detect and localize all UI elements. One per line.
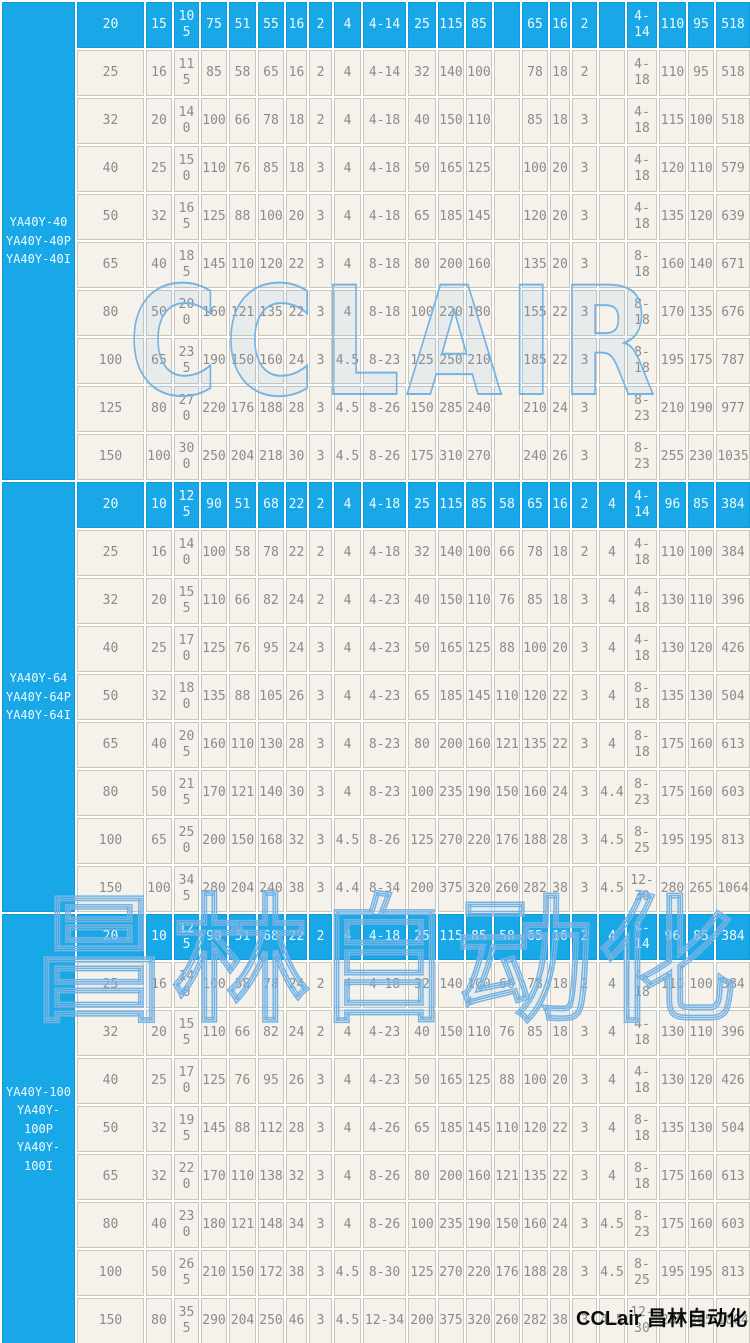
data-cell: 40 xyxy=(76,145,145,193)
data-cell: 110 xyxy=(228,1153,257,1201)
data-cell: 115 xyxy=(658,97,687,145)
data-cell: 165 xyxy=(173,193,200,241)
data-cell: 155 xyxy=(173,577,200,625)
data-cell: 78 xyxy=(257,961,285,1009)
data-cell: 4-18 xyxy=(362,481,407,529)
table-row: 4025170125769526344-23501651258810020344… xyxy=(1,1057,750,1105)
data-cell: 170 xyxy=(200,769,228,817)
data-cell: 4-18 xyxy=(626,97,658,145)
data-cell: 18 xyxy=(285,97,308,145)
data-cell: 135 xyxy=(687,289,715,337)
data-cell: 4-23 xyxy=(362,625,407,673)
data-cell: 135 xyxy=(658,673,687,721)
data-cell: 18 xyxy=(549,961,571,1009)
data-cell: 160 xyxy=(687,1153,715,1201)
data-cell: 260 xyxy=(493,865,521,913)
data-cell: 100 xyxy=(521,625,549,673)
data-cell: 18 xyxy=(285,145,308,193)
data-cell: 80 xyxy=(145,385,173,433)
data-cell: 65 xyxy=(257,49,285,97)
table-row: 4025170125769524344-23501651258810020344… xyxy=(1,625,750,673)
data-cell: 110 xyxy=(228,241,257,289)
data-cell: 4-18 xyxy=(626,577,658,625)
data-cell: 40 xyxy=(407,577,437,625)
data-cell: 90 xyxy=(200,913,228,961)
table-row: 100652351901501602434.58-231252502101852… xyxy=(1,337,750,385)
data-cell: 80 xyxy=(407,721,437,769)
data-cell: 32 xyxy=(76,1009,145,1057)
data-cell xyxy=(493,145,521,193)
data-cell: 235 xyxy=(437,1201,465,1249)
data-cell: 28 xyxy=(549,817,571,865)
data-cell: 396 xyxy=(715,577,750,625)
data-cell: 4 xyxy=(598,1057,626,1105)
data-cell: 190 xyxy=(465,769,493,817)
table-row: YA40Y-100YA40Y-100PYA40Y-100I20101259051… xyxy=(1,913,750,961)
data-cell: 125 xyxy=(465,1057,493,1105)
data-cell: 15 xyxy=(145,1,173,49)
data-cell: 18 xyxy=(549,577,571,625)
model-cell: YA40Y-64YA40Y-64PYA40Y-64I xyxy=(1,481,76,913)
data-cell: 4-18 xyxy=(626,145,658,193)
spec-sheet-page: YA40Y-40YA40Y-40PYA40Y-40I20151057551551… xyxy=(0,0,750,1343)
data-cell: 4.4 xyxy=(598,769,626,817)
data-cell: 4 xyxy=(598,961,626,1009)
data-cell: 78 xyxy=(521,529,549,577)
data-cell: 125 xyxy=(200,625,228,673)
data-cell: 200 xyxy=(437,721,465,769)
data-cell: 40 xyxy=(145,721,173,769)
data-cell: 4-14 xyxy=(626,913,658,961)
data-cell: 4 xyxy=(333,1201,362,1249)
data-cell: 32 xyxy=(285,817,308,865)
data-cell: 8-25 xyxy=(626,817,658,865)
data-cell: 26 xyxy=(285,1057,308,1105)
data-cell: 150 xyxy=(493,769,521,817)
data-cell: 3 xyxy=(571,97,598,145)
data-cell: 110 xyxy=(687,1009,715,1057)
data-cell: 40 xyxy=(76,1057,145,1105)
data-cell: 24 xyxy=(549,1201,571,1249)
data-cell xyxy=(493,433,521,481)
data-cell: 22 xyxy=(549,1105,571,1153)
data-cell: 120 xyxy=(521,673,549,721)
model-label: YA40Y-40P xyxy=(4,232,73,251)
data-cell: 16 xyxy=(285,1,308,49)
data-cell: 270 xyxy=(437,817,465,865)
data-cell: 148 xyxy=(257,1201,285,1249)
data-cell: 100 xyxy=(257,193,285,241)
data-cell: 8-18 xyxy=(626,289,658,337)
data-cell: 255 xyxy=(658,433,687,481)
data-cell: 676 xyxy=(715,289,750,337)
data-cell: 195 xyxy=(658,817,687,865)
data-cell: 240 xyxy=(257,865,285,913)
data-cell: 50 xyxy=(407,1057,437,1105)
data-cell: 110 xyxy=(658,529,687,577)
data-cell: 88 xyxy=(228,1105,257,1153)
data-cell: 24 xyxy=(285,337,308,385)
data-cell: 150 xyxy=(493,1201,521,1249)
data-cell: 188 xyxy=(521,817,549,865)
data-cell: 3 xyxy=(571,865,598,913)
data-cell: 2 xyxy=(571,913,598,961)
table-row: 3220155110668224244-2340150110768518344-… xyxy=(1,1009,750,1057)
data-cell: 4 xyxy=(333,1009,362,1057)
data-cell: 4 xyxy=(598,673,626,721)
data-cell: 65 xyxy=(521,1,549,49)
data-cell: 280 xyxy=(200,865,228,913)
brand-label: CCLair 昌林自动化 xyxy=(576,1302,747,1331)
data-cell: 135 xyxy=(521,241,549,289)
data-cell: 285 xyxy=(437,385,465,433)
data-cell: 58 xyxy=(228,49,257,97)
table-row: 50321651258810020344-18651851451202034-1… xyxy=(1,193,750,241)
data-cell: 175 xyxy=(658,1153,687,1201)
data-cell: 20 xyxy=(549,1057,571,1105)
data-cell: 2 xyxy=(571,529,598,577)
data-cell: 2 xyxy=(571,1,598,49)
data-cell: 4.5 xyxy=(333,385,362,433)
data-cell: 220 xyxy=(173,1153,200,1201)
data-cell: 4 xyxy=(598,1105,626,1153)
data-cell: 130 xyxy=(658,625,687,673)
data-cell: 185 xyxy=(521,337,549,385)
data-cell: 3 xyxy=(571,817,598,865)
data-cell: 96 xyxy=(658,481,687,529)
data-cell: 4.5 xyxy=(333,1297,362,1343)
data-cell: 96 xyxy=(658,913,687,961)
model-label: YA40Y-64I xyxy=(4,706,73,725)
data-cell: 8-18 xyxy=(626,337,658,385)
data-cell xyxy=(493,97,521,145)
data-cell: 375 xyxy=(437,1297,465,1343)
data-cell: 25 xyxy=(407,913,437,961)
data-cell: 4-26 xyxy=(362,1105,407,1153)
data-cell: 2 xyxy=(308,577,333,625)
data-cell: 50 xyxy=(145,289,173,337)
data-cell: 1064 xyxy=(715,865,750,913)
data-cell: 24 xyxy=(285,961,308,1009)
data-cell: 4-14 xyxy=(626,1,658,49)
data-cell: 50 xyxy=(145,1249,173,1297)
data-cell: 150 xyxy=(228,337,257,385)
data-cell: 25 xyxy=(76,529,145,577)
data-cell: 32 xyxy=(76,97,145,145)
data-cell: 8-34 xyxy=(362,865,407,913)
data-cell: 22 xyxy=(285,289,308,337)
data-cell: 260 xyxy=(493,1297,521,1343)
data-cell: 4 xyxy=(598,481,626,529)
data-cell: 160 xyxy=(687,769,715,817)
data-cell: 396 xyxy=(715,1009,750,1057)
data-cell: 4-18 xyxy=(362,97,407,145)
data-cell: 160 xyxy=(521,1201,549,1249)
data-cell: 145 xyxy=(200,241,228,289)
data-cell: 220 xyxy=(465,1249,493,1297)
data-cell: 3 xyxy=(571,193,598,241)
data-cell: 130 xyxy=(687,673,715,721)
data-cell: 150 xyxy=(437,577,465,625)
data-cell: 3 xyxy=(571,1249,598,1297)
data-cell: 384 xyxy=(715,481,750,529)
data-cell: 165 xyxy=(437,625,465,673)
data-cell: 195 xyxy=(687,817,715,865)
data-cell: 4-14 xyxy=(626,481,658,529)
model-label: YA40Y-100P xyxy=(4,1101,73,1138)
data-cell: 150 xyxy=(228,817,257,865)
data-cell: 787 xyxy=(715,337,750,385)
data-cell: 160 xyxy=(658,241,687,289)
data-cell: 384 xyxy=(715,913,750,961)
data-cell: 110 xyxy=(200,1009,228,1057)
table-row: 3220155110668224244-2340150110768518344-… xyxy=(1,577,750,625)
data-cell: 250 xyxy=(173,817,200,865)
data-cell: 2 xyxy=(308,913,333,961)
data-cell: 95 xyxy=(257,1057,285,1105)
data-cell: 125 xyxy=(407,337,437,385)
data-cell: 3 xyxy=(571,1201,598,1249)
data-cell: 250 xyxy=(257,1297,285,1343)
data-cell: 4-23 xyxy=(362,1057,407,1105)
data-cell: 375 xyxy=(437,865,465,913)
data-cell: 250 xyxy=(437,337,465,385)
data-cell: 165 xyxy=(437,1057,465,1105)
data-cell: 813 xyxy=(715,817,750,865)
model-label: YA40Y-40 xyxy=(4,213,73,232)
data-cell: 115 xyxy=(173,49,200,97)
data-cell: 50 xyxy=(407,625,437,673)
data-cell: 168 xyxy=(257,817,285,865)
data-cell: 4-18 xyxy=(626,625,658,673)
data-cell: 320 xyxy=(465,865,493,913)
data-cell: 8-18 xyxy=(362,241,407,289)
data-cell: 185 xyxy=(173,241,200,289)
data-cell: 426 xyxy=(715,625,750,673)
data-cell: 32 xyxy=(407,49,437,97)
data-cell: 175 xyxy=(658,1201,687,1249)
data-cell: 250 xyxy=(200,433,228,481)
data-cell: 110 xyxy=(658,49,687,97)
data-cell xyxy=(598,145,626,193)
data-cell: 82 xyxy=(257,577,285,625)
data-cell: 68 xyxy=(257,481,285,529)
data-cell: 4.4 xyxy=(333,865,362,913)
data-cell: 160 xyxy=(687,1201,715,1249)
data-cell: 2 xyxy=(308,961,333,1009)
data-cell: 105 xyxy=(173,1,200,49)
data-cell: 100 xyxy=(200,961,228,1009)
data-cell: 135 xyxy=(521,721,549,769)
data-cell: 240 xyxy=(465,385,493,433)
data-cell: 30 xyxy=(285,769,308,817)
data-cell: 2 xyxy=(308,49,333,97)
data-cell: 8-26 xyxy=(362,1201,407,1249)
data-cell: 50 xyxy=(76,193,145,241)
data-cell: 210 xyxy=(200,1249,228,1297)
data-cell: 22 xyxy=(549,673,571,721)
data-cell: 66 xyxy=(228,1009,257,1057)
data-cell xyxy=(493,241,521,289)
data-cell: 110 xyxy=(493,1105,521,1153)
data-cell: 320 xyxy=(465,1297,493,1343)
data-cell: 218 xyxy=(257,433,285,481)
data-cell: 8-18 xyxy=(362,289,407,337)
data-cell: 32 xyxy=(145,193,173,241)
data-cell: 12-30 xyxy=(626,865,658,913)
data-cell: 25 xyxy=(407,481,437,529)
data-cell: 3 xyxy=(308,1057,333,1105)
data-cell: 140 xyxy=(257,769,285,817)
data-cell xyxy=(493,1,521,49)
data-cell: 140 xyxy=(173,961,200,1009)
data-cell: 4 xyxy=(598,1153,626,1201)
data-cell: 150 xyxy=(437,1009,465,1057)
data-cell: 195 xyxy=(173,1105,200,1153)
data-cell: 220 xyxy=(437,289,465,337)
data-cell: 40 xyxy=(145,241,173,289)
table-row: 653222017011013832348-268020016012113522… xyxy=(1,1153,750,1201)
data-cell: 3 xyxy=(308,385,333,433)
data-cell: 4-18 xyxy=(626,49,658,97)
data-cell: 270 xyxy=(437,1249,465,1297)
data-cell: 160 xyxy=(465,241,493,289)
table-row: 1501003452802042403834.48-34200375320260… xyxy=(1,865,750,913)
data-cell: 4-18 xyxy=(626,193,658,241)
data-cell: 8-25 xyxy=(626,1249,658,1297)
data-cell: 4 xyxy=(598,577,626,625)
data-cell: 65 xyxy=(521,913,549,961)
data-cell: 51 xyxy=(228,913,257,961)
data-cell xyxy=(598,433,626,481)
data-cell: 4 xyxy=(333,913,362,961)
data-cell: 4 xyxy=(333,145,362,193)
data-cell: 4 xyxy=(333,289,362,337)
data-cell: 22 xyxy=(549,289,571,337)
data-cell: 100 xyxy=(200,97,228,145)
data-cell: 175 xyxy=(658,721,687,769)
data-cell: 2 xyxy=(571,481,598,529)
data-cell: 190 xyxy=(200,337,228,385)
data-cell: 235 xyxy=(437,769,465,817)
data-cell: 8-26 xyxy=(362,385,407,433)
data-cell xyxy=(598,337,626,385)
data-cell: 426 xyxy=(715,1057,750,1105)
data-cell: 160 xyxy=(200,721,228,769)
data-cell: 32 xyxy=(145,1105,173,1153)
data-cell: 22 xyxy=(285,529,308,577)
data-cell: 25 xyxy=(76,49,145,97)
data-cell: 90 xyxy=(200,481,228,529)
data-cell: 28 xyxy=(285,1105,308,1153)
data-cell: 110 xyxy=(687,145,715,193)
data-cell: 579 xyxy=(715,145,750,193)
data-cell: 26 xyxy=(549,433,571,481)
data-cell: 8-18 xyxy=(626,721,658,769)
data-cell: 200 xyxy=(437,1153,465,1201)
table-row: 251611585586516244-1432140100781824-1811… xyxy=(1,49,750,97)
data-cell: 121 xyxy=(493,721,521,769)
data-cell: 58 xyxy=(228,961,257,1009)
data-cell: 204 xyxy=(228,865,257,913)
data-cell: 230 xyxy=(687,433,715,481)
data-cell: 130 xyxy=(658,577,687,625)
data-cell: 138 xyxy=(257,1153,285,1201)
data-cell: 120 xyxy=(687,625,715,673)
data-cell: 3 xyxy=(571,673,598,721)
table-row: 654018514511012022348-18802001601352038-… xyxy=(1,241,750,289)
data-cell: 121 xyxy=(228,769,257,817)
data-cell: 518 xyxy=(715,97,750,145)
data-cell: 180 xyxy=(465,289,493,337)
data-cell: 150 xyxy=(437,97,465,145)
data-cell: 80 xyxy=(145,1297,173,1343)
data-cell: 100 xyxy=(76,337,145,385)
data-cell: 4 xyxy=(333,1,362,49)
data-cell: 58 xyxy=(493,481,521,529)
data-cell: 3 xyxy=(308,1249,333,1297)
data-cell: 50 xyxy=(76,673,145,721)
data-cell: 100 xyxy=(407,769,437,817)
data-cell: 80 xyxy=(407,241,437,289)
data-cell: 88 xyxy=(493,625,521,673)
data-cell: 235 xyxy=(173,337,200,385)
data-cell: 68 xyxy=(257,913,285,961)
data-cell: 125 xyxy=(407,1249,437,1297)
data-cell: 3 xyxy=(308,193,333,241)
table-row: 805020016012113522348-181002201801552238… xyxy=(1,289,750,337)
data-cell: 4.5 xyxy=(333,817,362,865)
data-cell: 4 xyxy=(333,1057,362,1105)
data-cell: 120 xyxy=(658,145,687,193)
data-cell: 51 xyxy=(228,1,257,49)
data-cell xyxy=(598,49,626,97)
data-cell: 50 xyxy=(76,1105,145,1153)
data-cell: 32 xyxy=(285,1153,308,1201)
data-cell: 95 xyxy=(257,625,285,673)
data-cell: 16 xyxy=(285,49,308,97)
data-cell: 2 xyxy=(308,1,333,49)
data-cell: 639 xyxy=(715,193,750,241)
data-cell: 4-18 xyxy=(626,1057,658,1105)
data-cell: 4 xyxy=(598,529,626,577)
data-cell: 4 xyxy=(598,1009,626,1057)
data-cell: 170 xyxy=(173,625,200,673)
data-cell: 4 xyxy=(333,529,362,577)
data-cell: 150 xyxy=(76,865,145,913)
data-cell: 80 xyxy=(76,1201,145,1249)
data-cell: 140 xyxy=(437,529,465,577)
data-cell: 205 xyxy=(173,721,200,769)
table-row: 4025150110768518344-18501651251002034-18… xyxy=(1,145,750,193)
data-cell: 290 xyxy=(200,1297,228,1343)
data-cell: 25 xyxy=(145,1057,173,1105)
data-cell: 160 xyxy=(257,337,285,385)
data-cell: 32 xyxy=(407,961,437,1009)
table-row: 50321801358810526344-2365185145110120223… xyxy=(1,673,750,721)
data-cell: 32 xyxy=(145,1153,173,1201)
data-cell: 16 xyxy=(549,1,571,49)
data-cell: 20 xyxy=(549,145,571,193)
data-cell: 210 xyxy=(521,385,549,433)
data-cell: 3 xyxy=(308,145,333,193)
data-cell: 24 xyxy=(549,385,571,433)
data-cell: 66 xyxy=(228,577,257,625)
data-cell: 125 xyxy=(407,817,437,865)
model-label: YA40Y-64 xyxy=(4,669,73,688)
data-cell: 125 xyxy=(76,385,145,433)
data-cell: 4 xyxy=(333,673,362,721)
